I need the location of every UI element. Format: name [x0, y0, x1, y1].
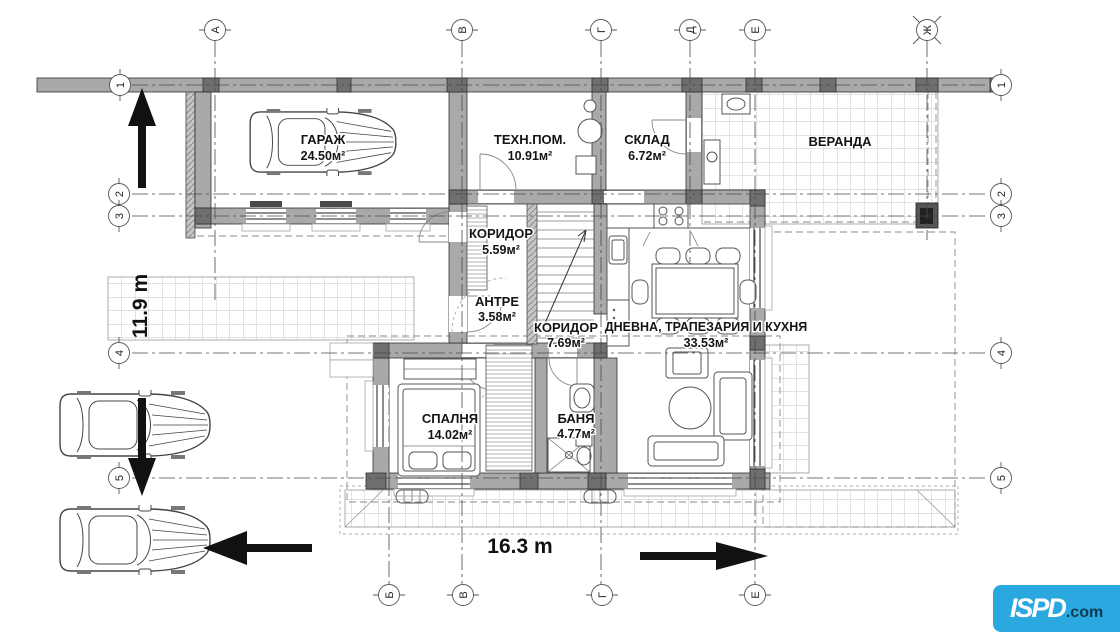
- logo-watermark: ISPD.com: [993, 585, 1120, 632]
- svg-text:5: 5: [996, 475, 1008, 481]
- axis-top-d: Д: [674, 20, 706, 41]
- room-label-garage: ГАРАЖ: [301, 132, 346, 147]
- room-label-corridor1: КОРИДОР: [469, 226, 533, 241]
- svg-text:2: 2: [996, 191, 1008, 197]
- axis-bottom-g: Г: [586, 585, 618, 606]
- axis-right-1: 1: [991, 69, 1012, 101]
- axis-top-v: В: [446, 20, 478, 41]
- armchair: [666, 348, 708, 378]
- axis-top-row: А В Г Д Е Ж: [199, 16, 941, 44]
- svg-text:В: В: [457, 26, 469, 33]
- floor-plan-drawing: ГАРАЖ 24.50м² ТЕХН.ПОМ. 10.91м² СКЛАД 6.…: [0, 0, 1120, 632]
- wardrobe-bedroom: [486, 345, 532, 471]
- svg-text:Г: Г: [597, 592, 609, 598]
- svg-text:В: В: [458, 591, 470, 598]
- svg-text:4: 4: [114, 350, 126, 356]
- axis-right-column: 1 2 3 4 5: [991, 69, 1012, 494]
- svg-text:3: 3: [996, 213, 1008, 219]
- logo-brand-text: ISPD: [1010, 595, 1065, 622]
- svg-text:3: 3: [114, 213, 126, 219]
- axis-right-4: 4: [991, 337, 1012, 369]
- room-area-bedroom: 14.02м²: [428, 428, 473, 442]
- axis-top-zh: Ж: [913, 16, 941, 44]
- room-label-bath: БАНЯ: [558, 411, 595, 426]
- room-label-living: ДНЕВНА, ТРАПЕЗАРИЯ И КУХНЯ: [605, 320, 808, 334]
- room-label-veranda: ВЕРАНДА: [808, 134, 872, 149]
- room-area-corridor2: 7.69м²: [547, 336, 585, 350]
- axis-bottom-e: Е: [739, 585, 771, 606]
- axis-bottom-v: В: [447, 585, 479, 606]
- svg-text:1: 1: [115, 82, 127, 88]
- axis-bottom-b: Б: [373, 585, 405, 606]
- room-area-living: 33.53м²: [684, 336, 729, 350]
- dimension-width: 16.3 m: [487, 535, 552, 558]
- svg-text:2: 2: [114, 191, 126, 197]
- svg-text:5: 5: [114, 475, 126, 481]
- room-area-tech: 10.91м²: [508, 149, 553, 163]
- entrance-steps: [330, 343, 373, 377]
- room-label-bedroom: СПАЛНЯ: [422, 411, 478, 426]
- room-area-bath: 4.77м²: [557, 427, 595, 441]
- parked-car-south: [60, 504, 210, 576]
- axis-top-g: Г: [585, 20, 617, 41]
- axis-right-3: 3: [991, 200, 1012, 232]
- sofa-south: [648, 436, 724, 466]
- room-label-tech: ТЕХН.ПОМ.: [494, 132, 566, 147]
- svg-text:Д: Д: [685, 26, 697, 34]
- sofa-east: [714, 372, 752, 440]
- svg-text:Ж: Ж: [922, 25, 934, 35]
- axis-left-1: 1: [110, 69, 131, 101]
- axis-top-e: Е: [739, 20, 771, 41]
- room-label-antre: АНТРЕ: [475, 294, 519, 309]
- axis-left-5: 5: [109, 462, 130, 494]
- axis-left-3: 3: [109, 200, 130, 232]
- svg-text:Е: Е: [750, 591, 762, 598]
- dimension-depth: 11.9 m: [129, 274, 152, 338]
- axis-left-4: 4: [109, 337, 130, 369]
- coffee-table: [669, 387, 711, 429]
- svg-text:Г: Г: [596, 27, 608, 33]
- svg-text:1: 1: [996, 82, 1008, 88]
- driveway-grid: [108, 277, 414, 340]
- floor-plan-page: ГАРАЖ 24.50м² ТЕХН.ПОМ. 10.91м² СКЛАД 6.…: [0, 0, 1120, 632]
- room-label-storage: СКЛАД: [624, 132, 670, 147]
- right-arrow: [640, 542, 768, 570]
- parked-car-north: [60, 389, 210, 461]
- room-label-corridor2: КОРИДОР: [534, 320, 598, 335]
- dresser: [404, 359, 476, 379]
- svg-text:Б: Б: [384, 591, 396, 598]
- room-area-garage: 24.50м²: [301, 149, 346, 163]
- room-area-antre: 3.58м²: [478, 310, 516, 324]
- room-area-storage: 6.72м²: [628, 149, 666, 163]
- logo-suffix-text: .com: [1066, 604, 1103, 622]
- room-area-corridor1: 5.59м²: [482, 243, 520, 257]
- svg-text:А: А: [210, 26, 222, 34]
- svg-text:Е: Е: [750, 26, 762, 33]
- svg-text:4: 4: [996, 350, 1008, 356]
- stairs-up-arrow: [542, 230, 586, 330]
- up-arrow: [128, 88, 156, 188]
- axis-top-a: А: [199, 20, 231, 41]
- axis-right-5: 5: [991, 462, 1012, 494]
- left-arrow: [203, 531, 312, 565]
- axis-bottom-row: Б В Г Е: [373, 585, 771, 606]
